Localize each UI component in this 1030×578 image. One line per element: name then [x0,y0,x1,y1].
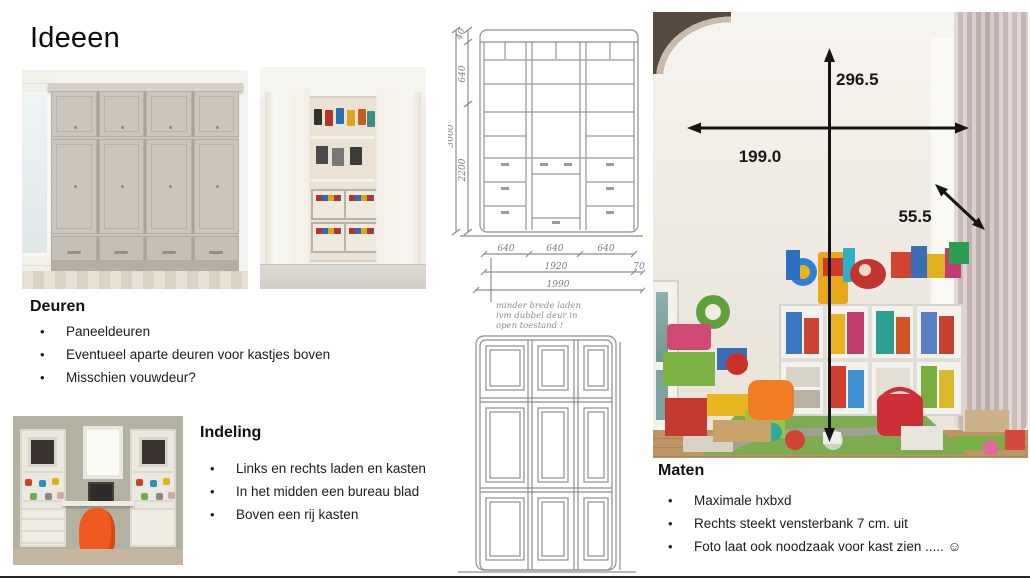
dim-inner-width: 1920 [545,262,568,272]
pullout-drawer [344,222,379,253]
bullet-list: Links en rechts laden en kasten In het m… [200,458,468,527]
cabinet-base-right [130,508,176,547]
bullet-item: Boven een rij kasten [200,504,468,527]
appliances [316,146,328,164]
shelf-items [136,479,143,486]
bullet-item: Eventueel aparte deuren voor kastjes bov… [30,344,450,367]
section-heading: Indeling [200,424,468,442]
pullout-drawer [311,189,346,220]
wardrobe-cabinet [51,83,239,274]
sketch-shelves [484,42,634,218]
sketch-note-line1: minder brede laden [496,301,581,311]
section-heading: Maten [658,462,1030,480]
dim-lower-section: 2200 [458,158,468,182]
shelf-items [25,479,32,486]
width-measurement-label: 199.0 [739,147,782,166]
pullout-drawer [344,189,379,220]
cabinet-door [146,91,191,137]
pantry-open-photo [260,67,426,289]
slide: Ideeen [0,0,1030,578]
bullet-list: Maximale hxbxd Rechts steekt vensterbank… [658,490,1030,559]
tile-floor [260,264,426,289]
door-dividers [480,340,620,570]
bullet-item: Paneeldeuren [30,321,450,344]
desk-top [62,501,133,506]
bullet-item: Maximale hxbxd [658,490,1030,513]
cabinet-door [99,139,144,234]
window [83,426,123,479]
shelf [133,500,173,502]
bifold-door-left [265,87,310,273]
dim-total-width: 1990 [547,280,570,290]
desk-unit-photo [13,416,183,565]
sketch-note-line2: ivm dubbel deur in [496,311,577,321]
pullout-drawer [311,222,346,253]
depth-arrow [935,184,985,230]
cabinet-door [51,139,96,234]
tall-door-row [51,139,239,234]
carpet [13,549,183,565]
dim-bay2: 640 [546,244,563,254]
shelf [311,136,375,139]
cabinet-sketch-elevation: 3000 40 640 2200 640 640 640 1920 70 199… [448,8,645,330]
dim-side-offset: 70 [633,262,645,272]
window [22,92,50,256]
toy-room-photo: 296.5 199.0 55.5 [653,12,1028,458]
section-heading: Deuren [30,298,450,316]
drawer-base-left [20,508,66,547]
bullet-item: Foto laat ook noodzaak voor kast zien ..… [658,536,1030,559]
dim-bay1: 640 [497,244,514,254]
cabinet-door [51,91,96,137]
cabinet-door [194,139,239,234]
section-indeling: Indeling Links en rechts laden en kasten… [200,424,468,527]
upper-cabinet-row [51,91,239,137]
shelf [133,471,173,473]
shelf [311,179,375,182]
cabinet-door [99,91,144,137]
height-measurement-label: 296.5 [836,70,879,89]
cabinet-sketch-doors [450,332,640,576]
sketch-bottom-dims [473,251,645,302]
section-maten: Maten Maximale hxbxd Rechts steekt venst… [658,462,1030,559]
shelf [23,471,63,473]
toys-and-measurements-overlay: 296.5 199.0 55.5 [653,12,1028,455]
toy-shelf-unit [780,305,962,415]
bullet-item: Links en rechts laden en kasten [200,458,468,481]
crown-molding [48,83,243,91]
bullet-list: Paneeldeuren Eventueel aparte deuren voo… [30,321,450,390]
toys-on-shelf [786,242,969,304]
cabinet-door [146,139,191,234]
wardrobe-closed-photo [22,70,248,289]
framed-picture [28,437,57,466]
tile-floor [22,271,248,289]
dim-upper-section: 640 [458,65,468,82]
shelf [23,500,63,502]
page-title: Ideeen [30,22,120,55]
bullet-item: Rechts steekt vensterbank 7 cm. uit [658,513,1030,536]
depth-measurement-label: 55.5 [898,207,931,226]
bifold-door-right [376,87,421,273]
bullet-item: In het midden een bureau blad [200,481,468,504]
dim-total-height: 3000 [448,124,456,147]
framed-picture [139,437,168,466]
pantry-items [314,109,322,125]
sketch-drawer-handles [501,163,614,224]
cabinet-door [194,91,239,137]
pantry-interior [308,96,378,263]
bullet-item: Misschien vouwdeur? [30,367,450,390]
dim-bay3: 640 [597,244,614,254]
section-deuren: Deuren Paneeldeuren Eventueel aparte deu… [30,298,450,390]
door-panels [486,346,608,560]
sketch-note-line3: open toestand ! [496,321,563,330]
